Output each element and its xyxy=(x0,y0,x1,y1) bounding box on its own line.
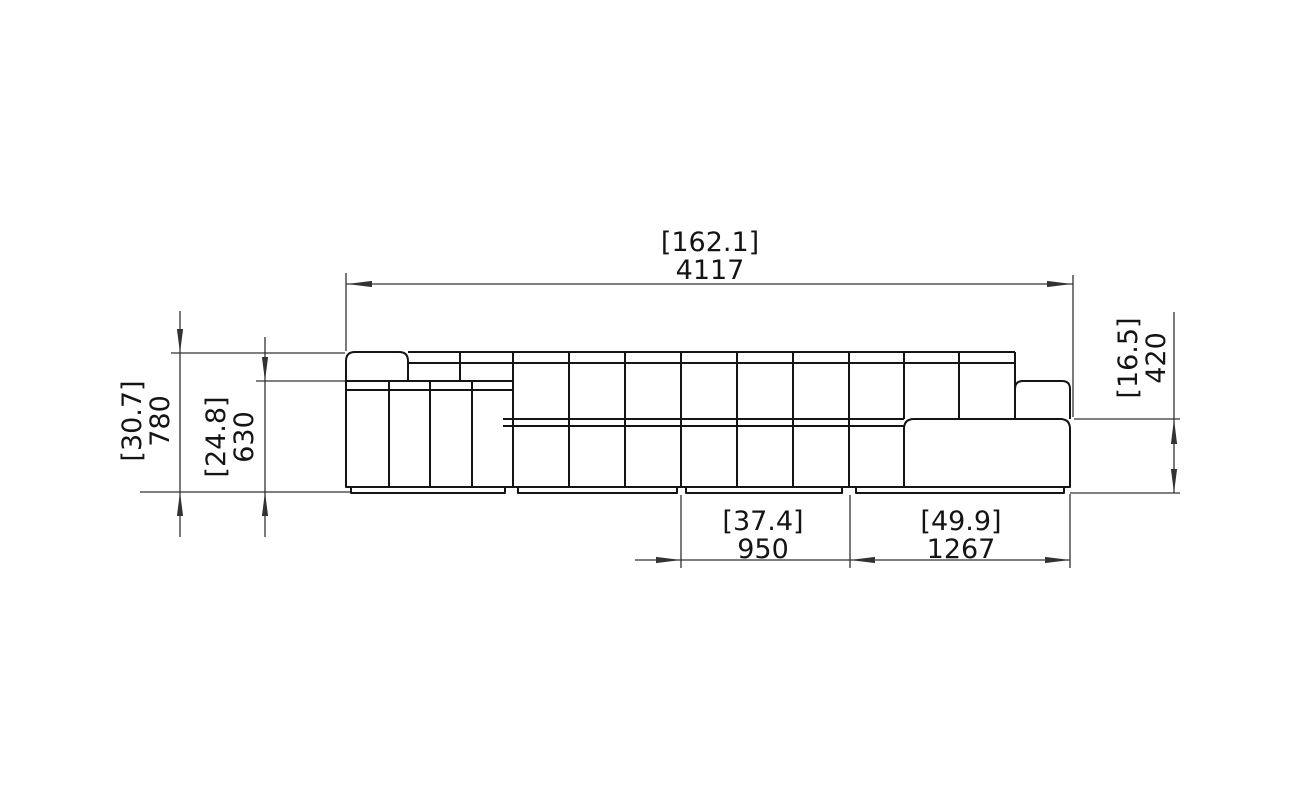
dim-arm-height-inches: [24.8] xyxy=(201,396,232,477)
arrowhead-top xyxy=(262,357,268,381)
arrowhead-chaise-right xyxy=(1045,557,1070,563)
dim-seat-height-inches: [16.5] xyxy=(1113,317,1144,398)
arrowhead-top xyxy=(1171,419,1177,444)
dim-seat-height: [16.5] 420 xyxy=(1070,312,1180,493)
dim-overall-width-mm: 4117 xyxy=(676,255,745,286)
extension-lines xyxy=(1070,419,1180,493)
dim-module-width-inches: [37.4] xyxy=(722,506,803,537)
sofa-chaise-seat xyxy=(904,419,1070,487)
arrowhead-top xyxy=(177,329,183,353)
dim-arm-height-label: [24.8] 630 xyxy=(201,396,260,477)
arrowhead-right xyxy=(1047,281,1072,287)
dim-chaise-width-inches: [49.9] xyxy=(920,506,1001,537)
dim-arm-height: [24.8] 630 xyxy=(201,337,345,537)
sofa-seat-band-lines xyxy=(503,419,904,426)
arrowhead-bottom xyxy=(1171,469,1177,493)
dim-back-height-label: [30.7] 780 xyxy=(117,380,176,461)
dim-overall-width-inches: [162.1] xyxy=(661,227,759,258)
dim-seat-height-mm: 420 xyxy=(1141,332,1172,384)
sofa-right-armrest xyxy=(1015,381,1070,419)
dim-arm-height-mm: 630 xyxy=(229,411,260,463)
arrowhead-module-left xyxy=(656,557,681,563)
dim-back-height-inches: [30.7] xyxy=(117,380,148,461)
sofa-base-plinth-segments xyxy=(351,487,1064,493)
arrowhead-bottom xyxy=(262,492,268,516)
dim-module-width-mm: 950 xyxy=(737,534,789,565)
sofa-left-arm-cushion xyxy=(346,352,408,381)
sofa-dimension-drawing: [162.1] 4117 [30.7] 780 [24.8] 630 xyxy=(0,0,1300,804)
sofa-left-module-panel-seams xyxy=(389,381,472,487)
dim-bottom-widths: [37.4] 950 [49.9] 1267 xyxy=(635,494,1070,568)
drawing-canvas: [162.1] 4117 [30.7] 780 [24.8] 630 xyxy=(0,0,1300,804)
arrowhead-left xyxy=(347,281,372,287)
dim-overall-width: [162.1] 4117 xyxy=(346,227,1073,417)
dim-back-height-mm: 780 xyxy=(145,395,176,447)
dim-seat-height-label: [16.5] 420 xyxy=(1113,317,1172,398)
dim-chaise-width-mm: 1267 xyxy=(927,534,996,565)
arrowhead-module-right xyxy=(850,557,875,563)
arrowhead-bottom xyxy=(177,492,183,516)
extension-lines xyxy=(346,273,1073,417)
sofa-front-elevation xyxy=(346,352,1070,493)
